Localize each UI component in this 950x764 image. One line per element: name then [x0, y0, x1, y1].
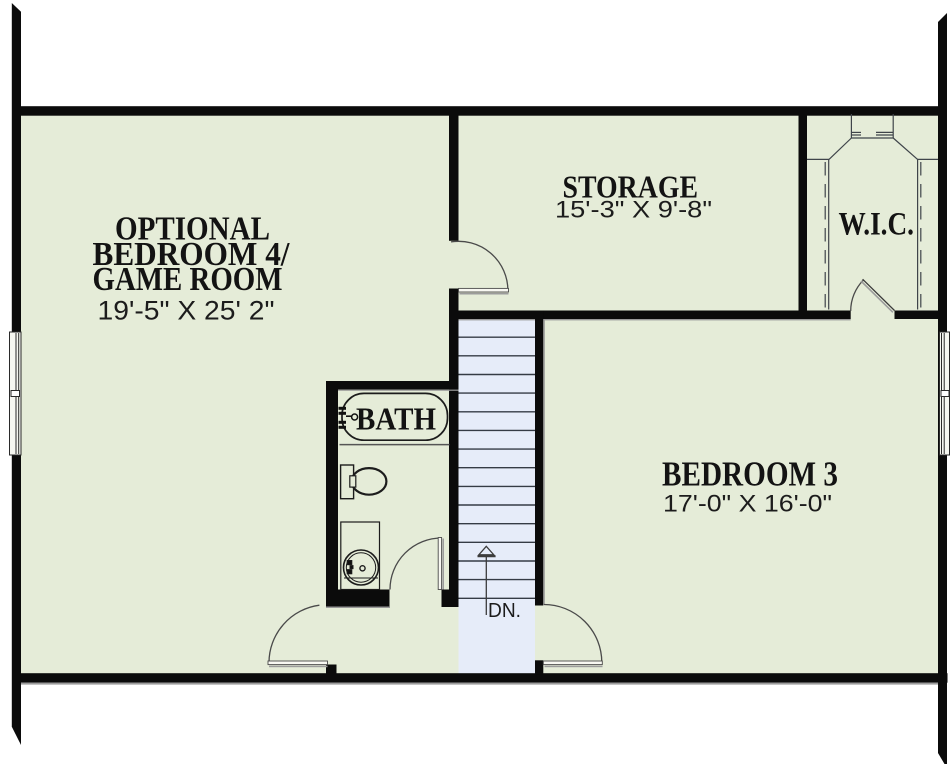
svg-text:W.I.C.: W.I.C.	[839, 207, 915, 243]
svg-text:15'-3" X 9'-8": 15'-3" X 9'-8"	[555, 197, 712, 224]
svg-text:BEDROOM 3: BEDROOM 3	[662, 455, 838, 494]
svg-text:17'-0" X 16'-0": 17'-0" X 16'-0"	[663, 491, 832, 518]
svg-text:19'-5" X 25' 2": 19'-5" X 25' 2"	[98, 296, 275, 326]
svg-text:DN.: DN.	[488, 599, 521, 622]
svg-text:BATH: BATH	[356, 402, 436, 437]
svg-text:GAME ROOM: GAME ROOM	[93, 261, 283, 298]
